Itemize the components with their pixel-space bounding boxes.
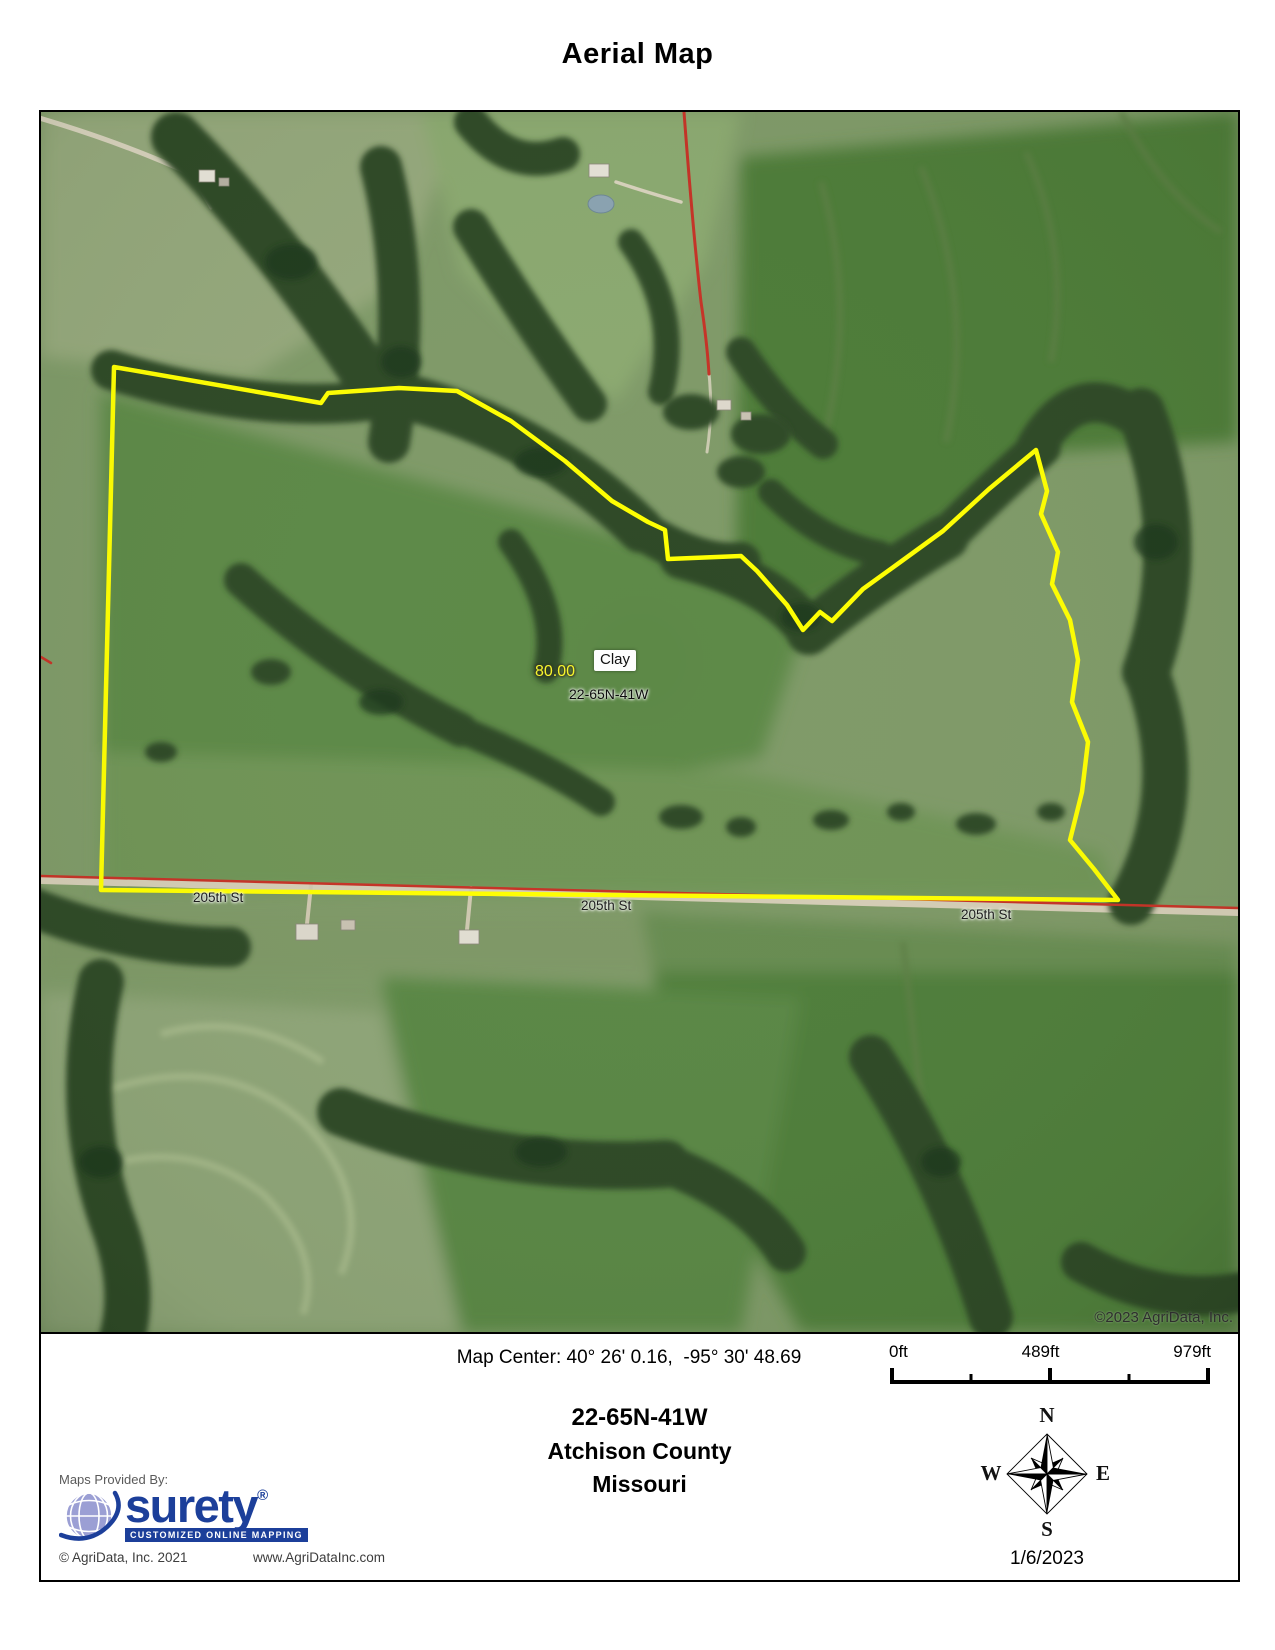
aerial-map: 80.00 Clay 22-65N-41W 205th St 205th St … [41, 112, 1238, 1334]
scale-start-label: 0ft [889, 1342, 908, 1362]
surety-logo: surety® CUSTOMIZED ONLINE MAPPING [59, 1489, 385, 1545]
svg-text:E: E [1096, 1461, 1110, 1485]
globe-icon [59, 1489, 123, 1545]
map-footer: Map Center: 40° 26' 0.16, -95° 30' 48.69… [41, 1334, 1238, 1580]
scale-bar-graphic [889, 1364, 1211, 1386]
provider-website: www.AgriDataInc.com [253, 1550, 385, 1565]
svg-text:N: N [1039, 1403, 1054, 1427]
scale-bar: 0ft 489ft 979ft [889, 1342, 1211, 1391]
soil-label: Clay [594, 650, 636, 671]
street-label-1: 205th St [193, 891, 243, 906]
svg-text:S: S [1041, 1517, 1053, 1541]
section-township-label: 22-65N-41W [569, 687, 648, 702]
aerial-imagery [41, 112, 1238, 1332]
registered-mark-icon: ® [257, 1487, 268, 1504]
map-copyright: ©2023 AgriData, Inc. [1094, 1310, 1233, 1327]
scale-middle-label: 489ft [1022, 1342, 1060, 1362]
svg-text:W: W [981, 1461, 1002, 1485]
street-label-3: 205th St [961, 908, 1011, 923]
compass-rose-icon: N S W E [977, 1396, 1117, 1544]
surety-tagline: CUSTOMIZED ONLINE MAPPING [125, 1528, 308, 1542]
scale-end-label: 979ft [1173, 1342, 1211, 1362]
page-title: Aerial Map [0, 38, 1275, 71]
provider-block: Maps Provided By: surety® [59, 1472, 385, 1565]
map-date: 1/6/2023 [957, 1548, 1137, 1570]
acreage-label: 80.00 [535, 663, 575, 681]
street-label-2: 205th St [581, 899, 631, 914]
surety-wordmark: surety® [125, 1481, 308, 1530]
provider-copyright: © AgriData, Inc. 2021 [59, 1550, 188, 1565]
map-frame: 80.00 Clay 22-65N-41W 205th St 205th St … [39, 110, 1240, 1582]
